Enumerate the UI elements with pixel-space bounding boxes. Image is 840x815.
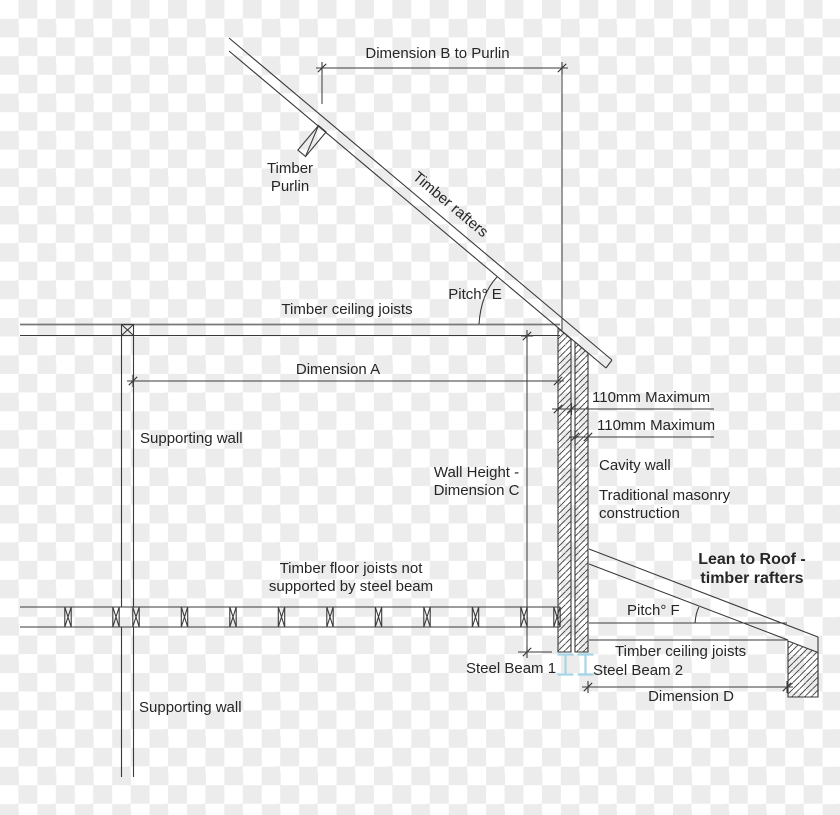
- label-supporting-wall-lower: Supporting wall: [139, 699, 242, 717]
- timber-purlin-shape: [298, 126, 326, 157]
- label-traditional-masonry: Traditional masonry construction: [599, 487, 759, 523]
- label-110mm-maximum-upper: 110mm Maximum: [592, 389, 710, 407]
- label-steel-beam-2: Steel Beam 2: [593, 662, 683, 680]
- label-110mm-maximum-lower: 110mm Maximum: [597, 417, 715, 435]
- label-wall-height-dimension-c: Wall Height - Dimension C: [428, 464, 525, 500]
- floor-joists-shape: [20, 607, 560, 627]
- label-pitch-f: Pitch° F: [627, 602, 680, 620]
- supporting-wall-lower-shape: [122, 627, 134, 777]
- lean-to-ceiling-joists-lines: [589, 623, 788, 640]
- label-lean-to-roof: Lean to Roof - timber rafters: [698, 550, 806, 588]
- label-dimension-a: Dimension A: [286, 361, 390, 379]
- label-supporting-wall-upper: Supporting wall: [140, 430, 243, 448]
- pitch-f-arc: [695, 607, 699, 623]
- label-timber-purlin: Timber Purlin: [250, 160, 330, 196]
- label-dimension-d: Dimension D: [645, 688, 737, 706]
- label-dimension-b: Dimension B to Purlin: [330, 45, 545, 63]
- label-timber-ceiling-joists: Timber ceiling joists: [279, 301, 415, 319]
- construction-diagram: Dimension B to Purlin Timber Purlin Timb…: [0, 0, 840, 815]
- label-steel-beam-1: Steel Beam 1: [466, 660, 556, 678]
- label-timber-ceiling-joists-lean: Timber ceiling joists: [615, 643, 746, 661]
- steel-beams-shape: [558, 655, 594, 675]
- label-pitch-e: Pitch° E: [435, 286, 515, 304]
- cavity-wall-shape: [558, 328, 588, 652]
- main-ceiling-joists-lines: [20, 325, 560, 336]
- label-floor-joists: Timber floor joists not supported by ste…: [262, 560, 440, 596]
- supporting-wall-upper-shape: [122, 325, 134, 608]
- lean-to-wall-shape: [788, 641, 818, 697]
- label-cavity-wall: Cavity wall: [599, 457, 671, 475]
